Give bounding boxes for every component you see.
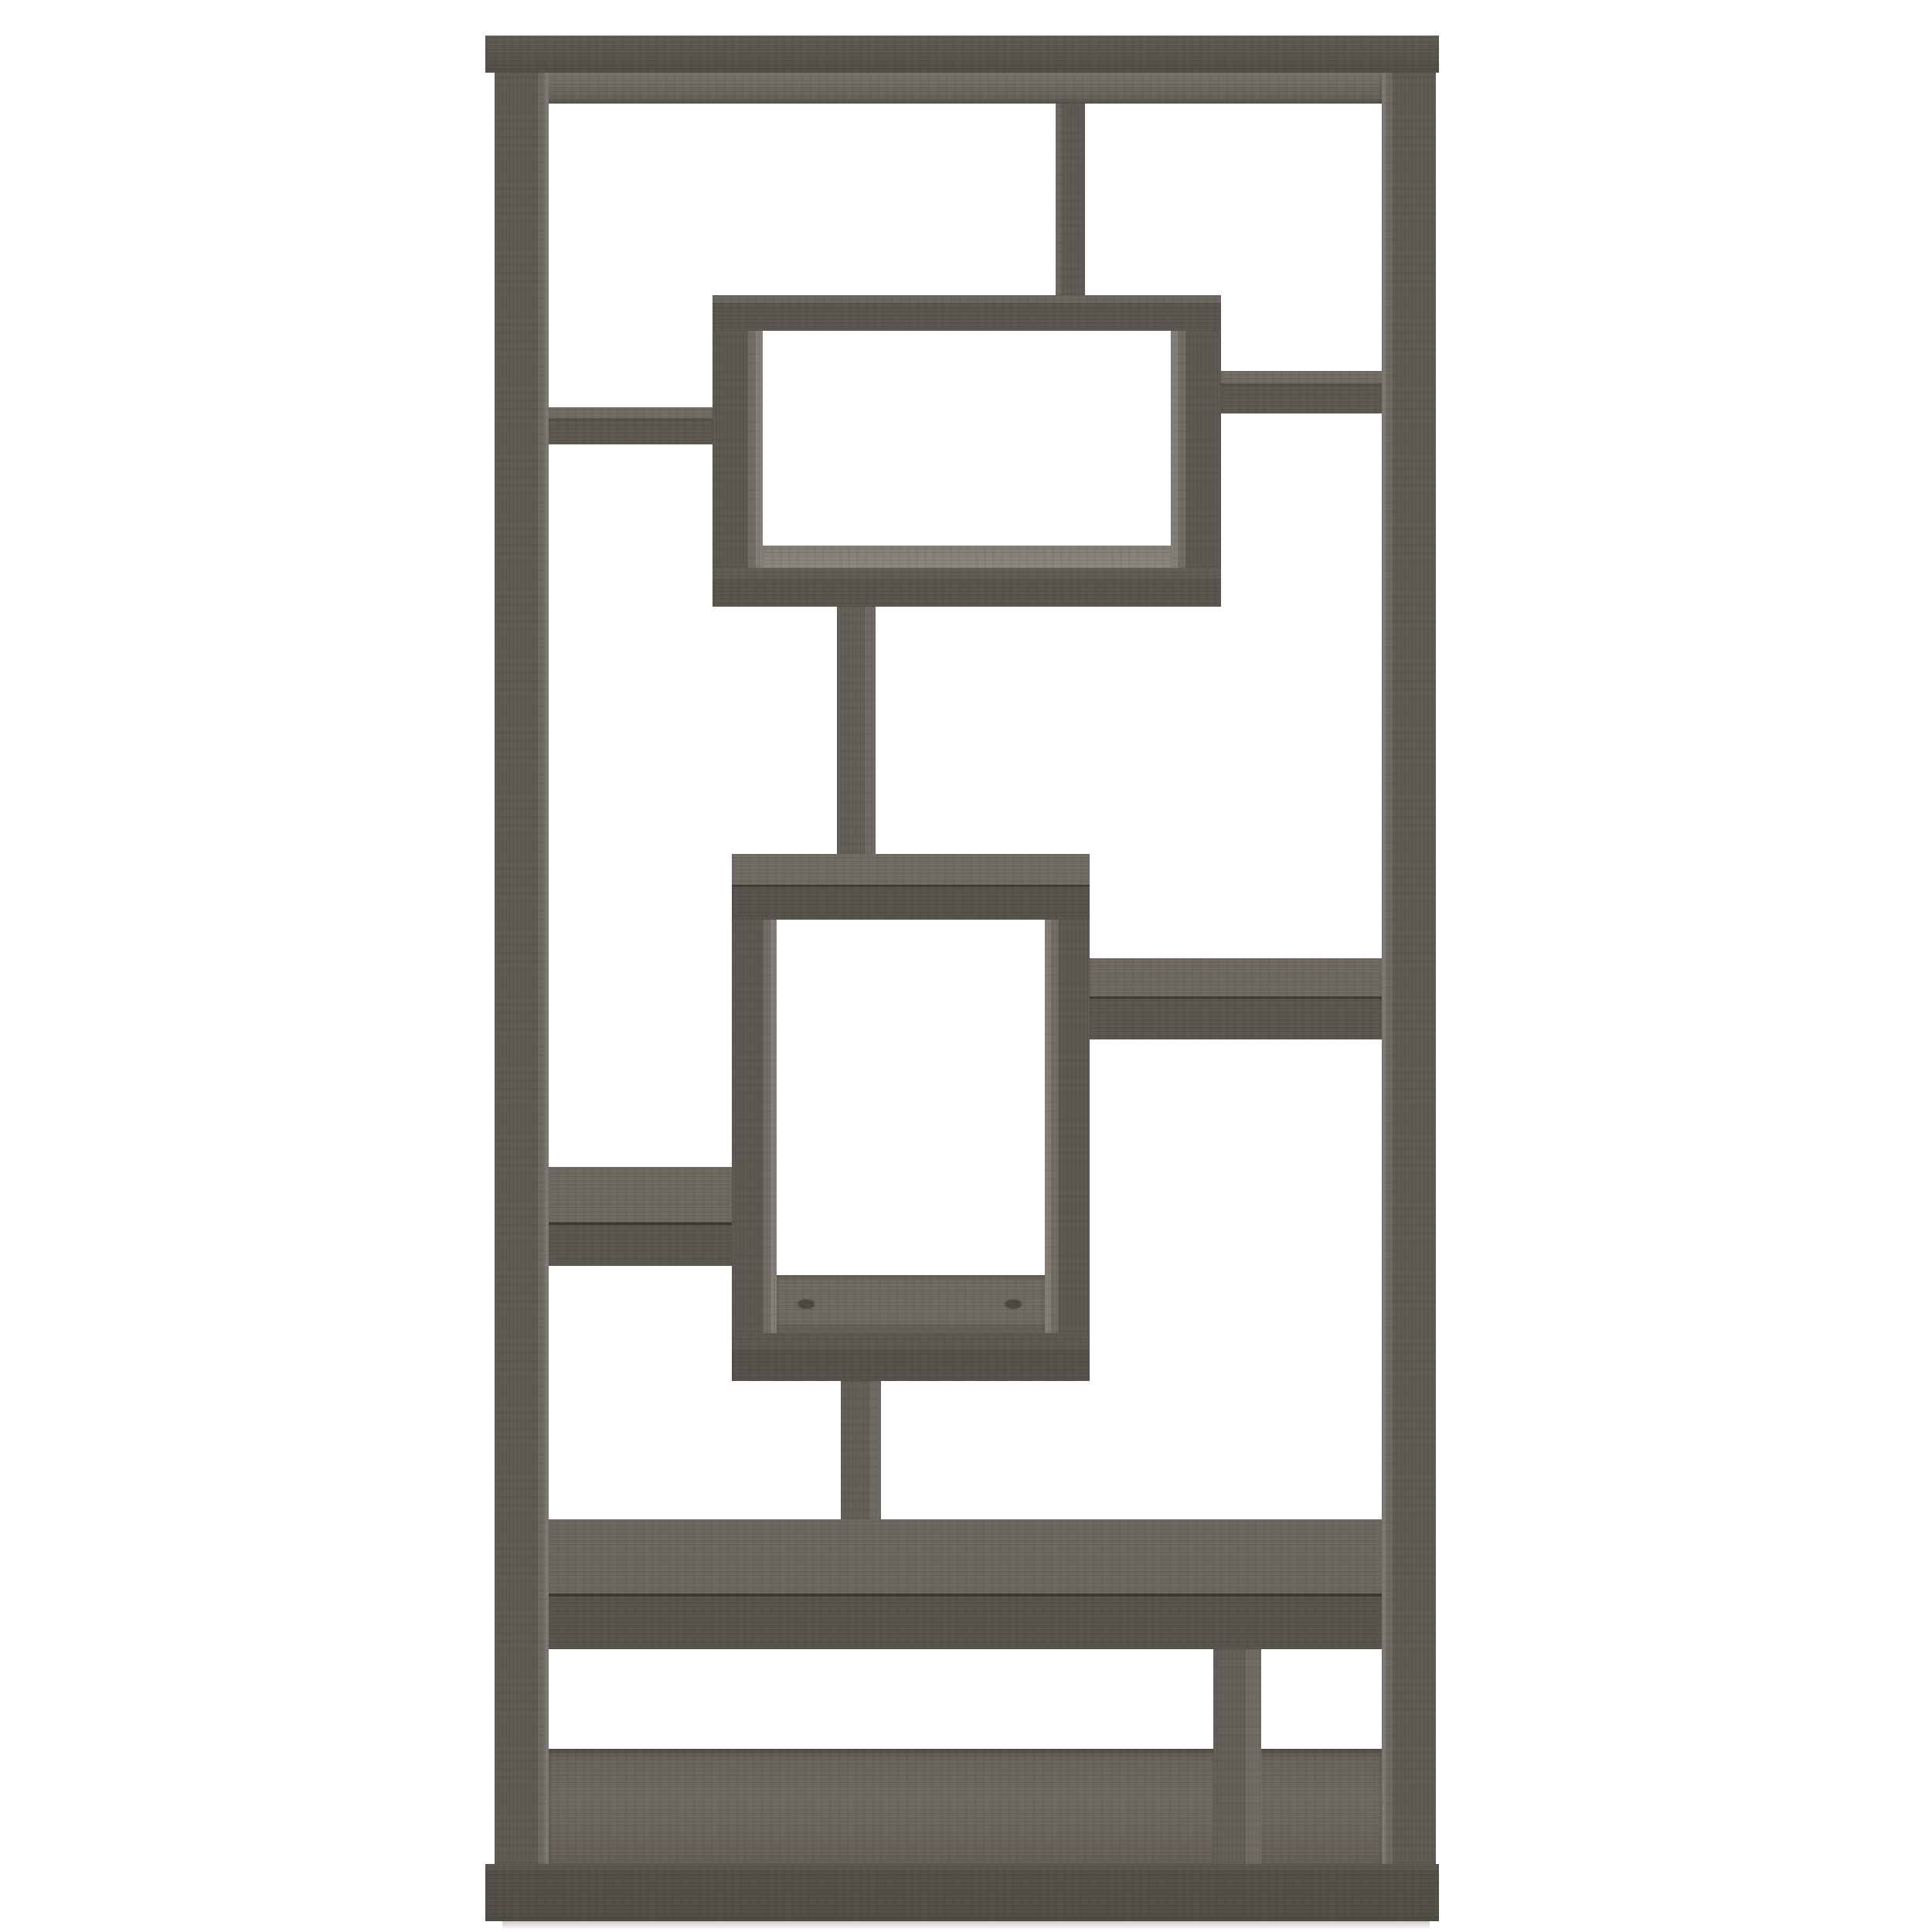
middle-box-left-stile <box>732 920 777 1333</box>
middle-box-bottom <box>732 1333 1090 1381</box>
top-section-divider <box>1056 104 1085 295</box>
middle-box-top <box>732 854 1090 920</box>
ground-shadow <box>502 1921 1430 1930</box>
main-lower-shelf <box>549 1519 1382 1649</box>
upper-box-bottom <box>713 568 1221 607</box>
dowel-mark-right <box>1003 1298 1023 1310</box>
right-mid-shelf <box>1090 958 1382 1039</box>
upper-stem <box>837 607 876 854</box>
lower-stem <box>841 1381 881 1519</box>
upper-box-top <box>713 295 1221 331</box>
left-stile <box>495 73 549 1864</box>
top-cap <box>485 36 1439 73</box>
geometric-bookcase <box>0 0 1932 1932</box>
top-right-shelf <box>1221 371 1382 413</box>
dowel-mark-left <box>796 1298 816 1310</box>
product-photo-stage <box>0 0 1932 1932</box>
middle-box-right-stile <box>1045 920 1090 1333</box>
upper-box-interior-floor <box>763 546 1171 568</box>
upper-box-right-stile <box>1171 331 1221 568</box>
upper-box-left-stile <box>713 331 763 568</box>
bottom-plinth <box>485 1864 1439 1921</box>
top-inner-rail <box>546 73 1382 104</box>
right-stile <box>1382 73 1436 1864</box>
left-mid-shelf <box>549 1167 732 1266</box>
top-left-shelf <box>549 407 715 444</box>
bottom-section-divider <box>1213 1649 1261 1864</box>
